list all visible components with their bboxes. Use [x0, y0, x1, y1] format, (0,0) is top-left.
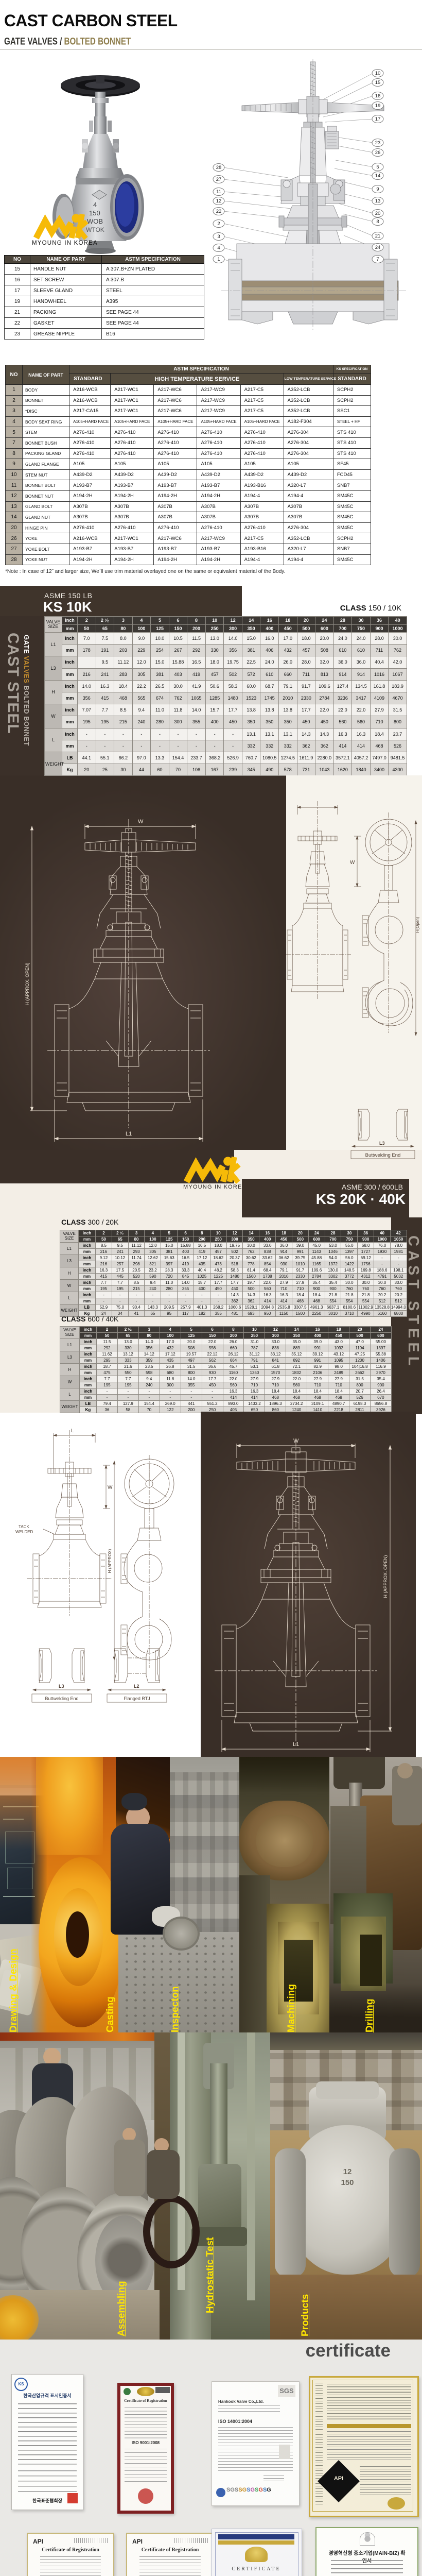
- svg-text:11: 11: [216, 189, 221, 195]
- svg-text:26: 26: [375, 150, 381, 156]
- svg-text:W: W: [293, 1438, 299, 1444]
- svg-text:Buttwelding End: Buttwelding End: [45, 1696, 78, 1701]
- svg-text:22: 22: [216, 209, 222, 214]
- svg-text:24: 24: [375, 245, 381, 250]
- svg-text:16: 16: [375, 93, 381, 99]
- svg-text:L1: L1: [293, 1741, 299, 1748]
- svg-text:28: 28: [216, 165, 222, 171]
- svg-text:Buttwelding End: Buttwelding End: [365, 1153, 401, 1158]
- svg-text:W: W: [138, 819, 144, 825]
- svg-text:19: 19: [375, 103, 381, 109]
- svg-text:H (APPROX. OPEN): H (APPROX. OPEN): [383, 1555, 388, 1598]
- svg-text:15: 15: [375, 80, 381, 86]
- svg-text:H (APPROX. OPEN): H (APPROX. OPEN): [25, 962, 30, 1005]
- svg-text:H(Open): H(Open): [415, 917, 420, 933]
- svg-text:Flanged RTJ: Flanged RTJ: [124, 1696, 150, 1701]
- svg-text:13: 13: [375, 198, 381, 204]
- svg-text:20: 20: [375, 211, 381, 216]
- svg-text:W: W: [108, 1485, 113, 1490]
- svg-text:12: 12: [216, 198, 222, 204]
- svg-text:23: 23: [375, 140, 381, 146]
- svg-text:L: L: [71, 1428, 74, 1434]
- svg-text:WELDED: WELDED: [15, 1530, 33, 1534]
- svg-text:5: 5: [376, 164, 379, 170]
- svg-text:2: 2: [217, 221, 220, 227]
- svg-text:L2: L2: [134, 1684, 139, 1689]
- svg-text:4: 4: [93, 201, 97, 209]
- svg-text:4: 4: [217, 245, 220, 251]
- svg-text:17: 17: [375, 116, 381, 122]
- svg-text:9: 9: [376, 187, 379, 192]
- svg-text:21: 21: [375, 233, 381, 239]
- svg-text:7: 7: [376, 257, 379, 262]
- svg-text:8: 8: [376, 219, 379, 225]
- svg-text:TACK: TACK: [19, 1524, 29, 1529]
- svg-text:27: 27: [216, 177, 222, 182]
- svg-text:W: W: [350, 860, 355, 866]
- svg-text:10: 10: [375, 71, 381, 76]
- svg-text:H (APPROX): H (APPROX): [108, 1549, 112, 1573]
- svg-text:L1: L1: [126, 1131, 132, 1137]
- svg-text:1: 1: [217, 257, 220, 262]
- svg-text:3: 3: [217, 234, 220, 240]
- svg-text:14: 14: [375, 173, 381, 179]
- svg-text:L3: L3: [59, 1684, 64, 1689]
- svg-text:L3: L3: [379, 1141, 385, 1146]
